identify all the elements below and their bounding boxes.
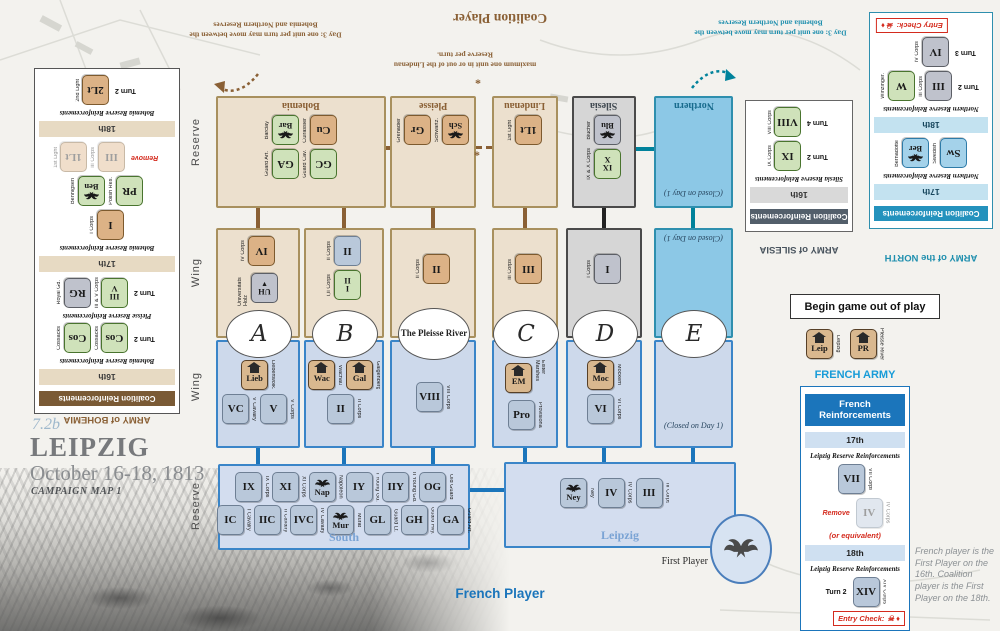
counter-row: WacWachauGalGalgenberg — [308, 360, 380, 390]
counter-row: IIII,II Corps — [327, 270, 361, 300]
band-17th: 17th — [39, 256, 175, 272]
counter-value: Gal — [353, 374, 366, 382]
counter-sch[interactable]: Sch — [442, 115, 469, 145]
section-label: Bohemia Reserve Reinforcements — [39, 244, 175, 251]
counter-value: Ber — [909, 144, 922, 152]
counter-label: XIV Corps — [881, 579, 887, 604]
counter-unit: BenBennigsen — [71, 176, 105, 206]
counter-row: IVIV Corps — [241, 236, 275, 266]
counter-value: Sw — [946, 148, 960, 158]
counter-unit: UH▼Universitäts Holz — [238, 270, 278, 306]
counter-label: Leipzig — [834, 335, 840, 352]
connector — [256, 208, 260, 228]
french-player-label: French Player — [420, 586, 580, 601]
counter-pr[interactable]: PR — [850, 329, 877, 359]
connector — [636, 147, 654, 151]
counter-vi[interactable]: VI — [587, 394, 614, 424]
counter-moc[interactable]: Moc — [587, 360, 614, 390]
turn-label: Turn 2 — [115, 87, 136, 94]
band-18th: 18th — [39, 121, 175, 137]
counter-sw[interactable]: Sw — [940, 138, 967, 168]
counter-value: UH — [258, 287, 271, 295]
counter-value: Mur — [332, 521, 349, 529]
counter-ii[interactable]: II — [327, 394, 354, 424]
counter-w[interactable]: W — [888, 71, 915, 101]
counter-value: Lieb — [246, 374, 263, 382]
counter-label: Swedish — [933, 143, 939, 164]
counter-i-ii[interactable]: III — [334, 270, 361, 300]
counter-value: IV — [255, 246, 267, 256]
connector — [470, 488, 504, 492]
counter-value: III — [344, 277, 351, 293]
counter-unit: II Corps — [587, 254, 621, 284]
counter-unit: SchSchwartz. — [435, 115, 469, 145]
counter-value: IIIV — [110, 285, 120, 301]
band-17th: 17th — [874, 184, 988, 200]
begin-out-of-play-label: Begin game out of play — [804, 301, 925, 313]
panel-header: Coalition Reinforcements — [874, 206, 988, 221]
lindenau-reserve-box: Lindenau 1Lt1st Light — [492, 96, 558, 208]
counter-ney[interactable]: Ney — [560, 478, 587, 508]
pleisse-reserve-box: Pleisse GrGrenadierSchSchwartz. — [390, 96, 476, 208]
counter-row: Turn 2XIVXIV Corps — [805, 577, 905, 607]
begin-out-of-play-box: Begin game out of play — [790, 294, 940, 319]
counter-iy[interactable]: IY — [346, 472, 373, 502]
counter-label: Murat — [355, 513, 361, 527]
counter-gc[interactable]: GC — [310, 149, 337, 179]
counter-ix-x[interactable]: IXX — [594, 149, 621, 179]
counter-row: GAGuard Art.GCGuard Cav. — [265, 149, 337, 179]
counter-label: III & V Corps — [95, 277, 101, 308]
counter-unit: IIYII Young Gd. — [382, 472, 416, 502]
counter-row: 1Lt1st LightIIIIII CorpsRemove — [39, 142, 175, 172]
counter-label: Mockern — [615, 364, 621, 385]
counter-row: IXIX CorpsTurn 2 — [750, 141, 848, 171]
counter-pro[interactable]: Pro — [508, 400, 535, 430]
connector — [602, 448, 606, 462]
counter-row: BerBernadotteSwSwedish — [874, 138, 988, 168]
counter-value: Wac — [314, 374, 330, 382]
counter-value: VIII — [778, 117, 799, 127]
counter-label: Cuirassier — [303, 118, 309, 143]
counter-label: Bernadotte — [895, 140, 901, 167]
french-reinforcements-panel: French Reinforcements 17th Leipzig Reser… — [800, 386, 910, 631]
counter-value: IX — [782, 151, 794, 161]
counter-value: IV — [930, 47, 942, 57]
counter-value: I — [605, 264, 609, 274]
connector — [256, 448, 260, 464]
counter-value: GC — [315, 159, 332, 169]
closed-note: (Closed on Day 1) — [664, 234, 723, 243]
counter-value: GL — [369, 515, 385, 525]
first-player-marker[interactable] — [710, 514, 772, 584]
column-oval-a: A — [226, 310, 292, 358]
counter-label: 1st Light — [508, 120, 514, 141]
french-army-title: FRENCH ARMY — [800, 369, 910, 381]
counter-value: Blu — [601, 121, 614, 129]
counter-value: GA — [277, 159, 294, 169]
town-icon — [250, 367, 259, 373]
counter-value: III — [932, 81, 945, 91]
counter-row: LiebLiebertwolk. — [241, 360, 275, 390]
town-icon — [596, 367, 605, 373]
counter-row: IIII Corps — [416, 254, 450, 284]
army-of-silesia-panel: VIIIVIII CorpsTurn 4 IXIX CorpsTurn 2 Si… — [745, 100, 853, 232]
counter-unit: CuCuirassier — [303, 115, 337, 145]
counter-unit: IIIIII Corps — [919, 71, 953, 101]
french-wing-label: Wing — [190, 372, 202, 401]
counter-value: PR — [122, 186, 137, 196]
counter-row: RGRoyal Gd.IIIVIII & V CorpsTurn 2 — [39, 277, 175, 308]
turn-label: Turn 2 — [134, 335, 155, 342]
army-of-bohemia-title: ARMY of BOHEMIA — [34, 414, 180, 425]
counter-label: Universitäts Holz — [238, 270, 250, 306]
counter-label: VI Corps — [615, 398, 621, 419]
counter-unit: IIII Corps — [416, 254, 450, 284]
counter-gr[interactable]: Gr — [404, 115, 431, 145]
counter-label: Cossacks — [95, 326, 101, 350]
column-letter: B — [337, 321, 354, 347]
counter-ga[interactable]: GA — [272, 149, 299, 179]
map-dates: October 16-18, 1813 — [30, 461, 204, 486]
eagle-icon — [908, 153, 923, 162]
eagle-icon — [278, 130, 293, 139]
counter-unit: CosCossacks — [57, 323, 91, 353]
counter-label: I Cavalry — [245, 509, 251, 531]
counter-label: III Corps — [919, 76, 925, 97]
counter-label: I Corps — [587, 260, 593, 278]
day3-arrow-right — [688, 64, 740, 92]
column-oval-e: E — [661, 310, 727, 358]
counter-og[interactable]: OG — [419, 472, 446, 502]
counter-row: 1Lt1st Light — [508, 115, 542, 145]
counter-ix[interactable]: IX — [235, 472, 262, 502]
south-label: South — [220, 530, 468, 545]
counter-iii[interactable]: III — [636, 478, 663, 508]
counter-label: 1st Light — [54, 147, 60, 168]
counter-viii[interactable]: VIII — [416, 382, 443, 412]
counter-unit: IVIV Corps — [241, 236, 275, 266]
counter-value: OG — [424, 482, 441, 492]
turn-label: Turn 4 — [807, 119, 828, 126]
column-oval-b: B — [312, 310, 378, 358]
counter-blu[interactable]: Blu — [594, 115, 621, 145]
counter-unit: CosCossacks — [95, 323, 129, 353]
counter-label: 2nd Light — [76, 79, 82, 102]
turn-label: Turn 2 — [826, 589, 847, 596]
counter-row: NeyNeyIVIV CorpsIIIIII Corps — [506, 478, 734, 508]
counter-row: IVIV CorpsTurn 3 — [874, 37, 988, 67]
counter-unit: RGRoyal Gd. — [57, 278, 91, 308]
counter-unit: II Corps — [90, 210, 124, 240]
counter-value: Gr — [411, 125, 424, 135]
counter-iv[interactable]: IV — [922, 37, 949, 67]
band-18th: 18th — [874, 117, 988, 133]
eagle-icon — [600, 130, 615, 139]
army-of-the-north-panel: Entry Check: ☠ ♦ IVIV CorpsTurn 3 WWinzi… — [869, 12, 993, 229]
connector — [691, 448, 695, 462]
counter-unit: IXIX Corps — [235, 472, 269, 502]
counter-iii[interactable]: III — [98, 142, 125, 172]
down-arrow-icon: ▼ — [261, 280, 268, 287]
bohemia-reserve-box: Bohemia BarBarclayCuCuirassier GAGuard A… — [216, 96, 386, 208]
remove-label: Remove — [131, 154, 158, 161]
counter-ii[interactable]: II — [423, 254, 450, 284]
counter-label: VIII Corps — [444, 385, 450, 409]
counter-ix[interactable]: IX — [774, 141, 801, 171]
counter-value: Cos — [106, 333, 124, 343]
counter-value: VC — [228, 404, 244, 414]
counter-value: IX — [243, 482, 255, 492]
turn-label: Turn 3 — [955, 49, 976, 56]
counter-row: VCV CavalryVV Corps — [222, 394, 294, 424]
counter-value: EM — [512, 377, 526, 385]
lindenau-note: maximum one unit in or out of the Linden… — [390, 50, 540, 70]
counter-label: IV Corps — [915, 41, 921, 62]
counter-label: Grenadier — [397, 118, 403, 142]
counter-unit: EMElster Marshes — [505, 360, 545, 396]
counter-label: II Corps — [416, 259, 422, 278]
column-oval-d: D — [572, 310, 638, 358]
counter-lieb[interactable]: Lieb — [241, 360, 268, 390]
counter-label: IV Corps — [626, 482, 632, 503]
counter-value: IIC — [259, 515, 276, 525]
counter-vc[interactable]: VC — [222, 394, 249, 424]
counter-unit: IVIV Corps — [856, 498, 890, 528]
counter-ben[interactable]: Ben — [78, 176, 105, 206]
eagle-icon — [84, 191, 99, 200]
counter-value: V — [270, 404, 278, 414]
counter-iv[interactable]: IV — [856, 498, 883, 528]
counter-value: II — [343, 246, 352, 256]
counter-unit: PRPolish Res. — [109, 176, 143, 206]
counter-unit: 2Lt2nd Light — [76, 75, 110, 105]
counter-unit: VIIIVIII Corps — [768, 107, 802, 137]
counter-unit: SwSwedish — [933, 138, 967, 168]
counter-iv[interactable]: IV — [248, 236, 275, 266]
counter-unit: WWinzinger. — [881, 71, 915, 101]
counter-value: II — [336, 404, 345, 414]
column-oval-pleisse: The Pleisse River — [398, 308, 470, 360]
band-18th: 18th — [805, 545, 905, 561]
counter-leip[interactable]: Leip — [806, 329, 833, 359]
counter-unit: GAGuard Art. — [265, 149, 299, 179]
day3-note-left: Day 3: one unit per turn may move betwee… — [188, 20, 343, 40]
counter-value: RG — [69, 287, 86, 297]
counter-unit: IIIIII Corps — [91, 142, 125, 172]
counter-1lt[interactable]: 1Lt — [515, 115, 542, 145]
counter-label: XI Corps — [300, 476, 306, 497]
eagle-icon — [724, 536, 758, 562]
silesia-reserve-box: Silesia BluBlücherIXXIX & X Corps — [572, 96, 636, 208]
counter-unit: IIIIII Corps — [636, 478, 670, 508]
remove-label: Remove — [823, 510, 850, 517]
counter-unit: IIII Corps — [327, 236, 361, 266]
counter-label: III Corps — [91, 147, 97, 168]
counter-label: IV Corps — [884, 502, 890, 523]
map-subtitle: CAMPAIGN MAP 1 — [31, 486, 122, 497]
counter-value: Cu — [316, 125, 330, 135]
counter-row: IIII Corps — [327, 236, 361, 266]
entry-check-label: Entry Check: — [838, 614, 884, 623]
column-letter: C — [517, 321, 535, 347]
counter-label: Guard Cav. — [303, 150, 309, 178]
army-of-bohemia-panel: 2Lt2nd LightTurn 2 Bohemia Reserve Reinf… — [34, 68, 180, 414]
counter-label: Ney — [588, 488, 594, 498]
panel-header: Coalition Reinforcements — [750, 209, 848, 224]
counter-1lt[interactable]: 1Lt — [60, 142, 87, 172]
counter-unit: XIVXIV Corps — [853, 577, 887, 607]
counter-label: Pleisse River — [878, 328, 884, 360]
counter-label: Wachau — [336, 365, 342, 385]
counter-nap[interactable]: Nap — [309, 472, 336, 502]
counter-unit: VIVI Corps — [587, 394, 621, 424]
counter-2lt[interactable]: 2Lt — [82, 75, 109, 105]
counter-row: CosCossacksCosCossacksTurn 2 — [39, 323, 175, 353]
counter-row: II Corps — [587, 254, 621, 284]
section-label: Pleisse Reserve Reinforcements — [39, 312, 175, 319]
counter-unit: BerBernadotte — [895, 138, 929, 168]
counter-iiy[interactable]: IIY — [382, 472, 409, 502]
counter-label: IV Corps — [241, 240, 247, 261]
counter-iii[interactable]: III — [925, 71, 952, 101]
closed-note: (Closed on Day 1) — [664, 189, 723, 198]
counter-label: I,II Corps — [327, 274, 333, 296]
connector — [523, 208, 527, 228]
counter-unit: LeipLeipzig — [806, 329, 840, 359]
band-16th: 16th — [39, 369, 175, 385]
connector — [431, 208, 435, 228]
turn-label: Turn 2 — [958, 83, 979, 90]
counter-label: Guard Lt. — [392, 509, 398, 532]
counter-label: Bennigsen — [71, 178, 77, 204]
counter-unit: VCV Cavalry — [222, 394, 256, 424]
counter-row: II Corps — [39, 210, 175, 240]
counter-unit: NeyNey — [560, 478, 594, 508]
counter-row: BenBennigsenPRPolish Res. — [39, 176, 175, 206]
counter-unit: MocMockern — [587, 360, 621, 390]
section-label: Leipzig Reserve Reinforcements — [805, 453, 905, 460]
column-letter: D — [596, 321, 614, 347]
counter-value: 1Lt — [66, 152, 83, 162]
counter-unit: BarBarclay — [265, 115, 299, 145]
band-17th: 17th — [805, 432, 905, 448]
counter-label: II Corps — [327, 241, 333, 260]
counter-unit: GalGalgenberg — [346, 360, 380, 390]
counter-unit: IIIIII Corps — [508, 254, 542, 284]
counter-unit: GCGuard Cav. — [303, 149, 337, 179]
leipzig-label: Leipzig — [506, 528, 734, 543]
counter-value: VI — [594, 404, 606, 414]
counter-cos[interactable]: Cos — [101, 323, 128, 353]
counter-label: V Corps — [288, 399, 294, 419]
counter-unit: NapNapoleon — [309, 472, 343, 502]
campaign-map: 7.2b LEIPZIG October 16-18, 1813 CAMPAIG… — [0, 0, 1000, 631]
town-icon — [514, 370, 523, 376]
counter-cu[interactable]: Cu — [310, 115, 337, 145]
counter-rg[interactable]: RG — [64, 278, 91, 308]
french-reserve-label: Reserve — [190, 482, 202, 530]
counter-em[interactable]: EM — [505, 363, 532, 393]
counter-value: IC — [224, 515, 236, 525]
counter-iv[interactable]: IV — [598, 478, 625, 508]
counter-vii[interactable]: VII — [838, 464, 865, 494]
counter-value: Pro — [513, 410, 530, 420]
counter-row: VIIIVIII Corps — [416, 382, 450, 412]
counter-bar[interactable]: Bar — [272, 115, 299, 145]
counter-label: I Corps — [90, 216, 96, 234]
counter-row: 2Lt2nd LightTurn 2 — [39, 75, 175, 105]
first-player-note: French player is the First Player on the… — [915, 546, 998, 604]
counter-v[interactable]: V — [260, 394, 287, 424]
out-of-play-counters: LeipLeipzigPRPleisse River — [806, 328, 884, 360]
counter-pr[interactable]: PR — [116, 176, 143, 206]
counter-wac[interactable]: Wac — [308, 360, 335, 390]
counter-value: IIY — [388, 482, 405, 492]
town-icon — [859, 337, 868, 343]
counter-value: Moc — [593, 374, 609, 382]
asterisk: * — [475, 76, 481, 91]
counter-row: IIII Corps — [327, 394, 361, 424]
entry-check-box: Entry Check: ☠ ♦ — [833, 611, 905, 626]
coalition-reserve-label: Reserve — [190, 118, 202, 166]
counter-value: XIV — [856, 587, 876, 597]
counter-label: I Young Gd. — [374, 473, 380, 502]
counter-xi[interactable]: XI — [272, 472, 299, 502]
counter-unit: IVIV Corps — [915, 37, 949, 67]
box-title: Silesia — [590, 100, 617, 111]
counter-xiv[interactable]: XIV — [853, 577, 880, 607]
counter-label: II Young Gd. — [410, 472, 416, 502]
counter-uh[interactable]: UH▼ — [251, 273, 278, 303]
counter-ii[interactable]: II — [334, 236, 361, 266]
or-equivalent-note: (or equivalent) — [805, 531, 905, 540]
column-letter: E — [686, 321, 703, 347]
turn-label: Turn 2 — [807, 153, 828, 160]
counter-value: IXX — [603, 156, 612, 172]
army-of-silesia-title: ARMY of SILESIA — [745, 244, 853, 255]
column-letter: A — [251, 321, 268, 347]
connector — [431, 448, 435, 464]
counter-unit: GrGrenadier — [397, 115, 431, 145]
counter-row: VIVI Corps — [587, 394, 621, 424]
counter-value: III — [522, 264, 535, 274]
counter-gal[interactable]: Gal — [346, 360, 373, 390]
counter-value: GA — [443, 515, 460, 525]
counter-iii[interactable]: III — [515, 254, 542, 284]
section-label: Leipzig Reserve Reinforcements — [805, 566, 905, 573]
counter-label: Cossacks — [57, 326, 63, 350]
counter-value: II — [432, 264, 441, 274]
coalition-wing-label: Wing — [190, 258, 202, 287]
counter-label: II Corps — [355, 399, 361, 418]
counter-label: V Cavalry — [250, 397, 256, 421]
counter-label: Blücher — [587, 121, 593, 140]
turn-label: Turn 2 — [134, 289, 155, 296]
section-label: Bohemia Reserve Reinforcements — [39, 109, 175, 116]
counter-unit: PRPleisse River — [850, 328, 884, 360]
counter-i[interactable]: I — [594, 254, 621, 284]
counter-unit: OGOld Guard — [419, 472, 453, 502]
counter-ber[interactable]: Ber — [902, 138, 929, 168]
counter-viii[interactable]: VIII — [774, 107, 801, 137]
counter-i[interactable]: I — [97, 210, 124, 240]
counter-label: Old Guard — [447, 474, 453, 499]
counter-unit: IIII Corps — [327, 394, 361, 424]
counter-iii-v[interactable]: IIIV — [101, 278, 128, 308]
counter-cos[interactable]: Cos — [64, 323, 91, 353]
counter-row: MocMockern — [587, 360, 621, 390]
